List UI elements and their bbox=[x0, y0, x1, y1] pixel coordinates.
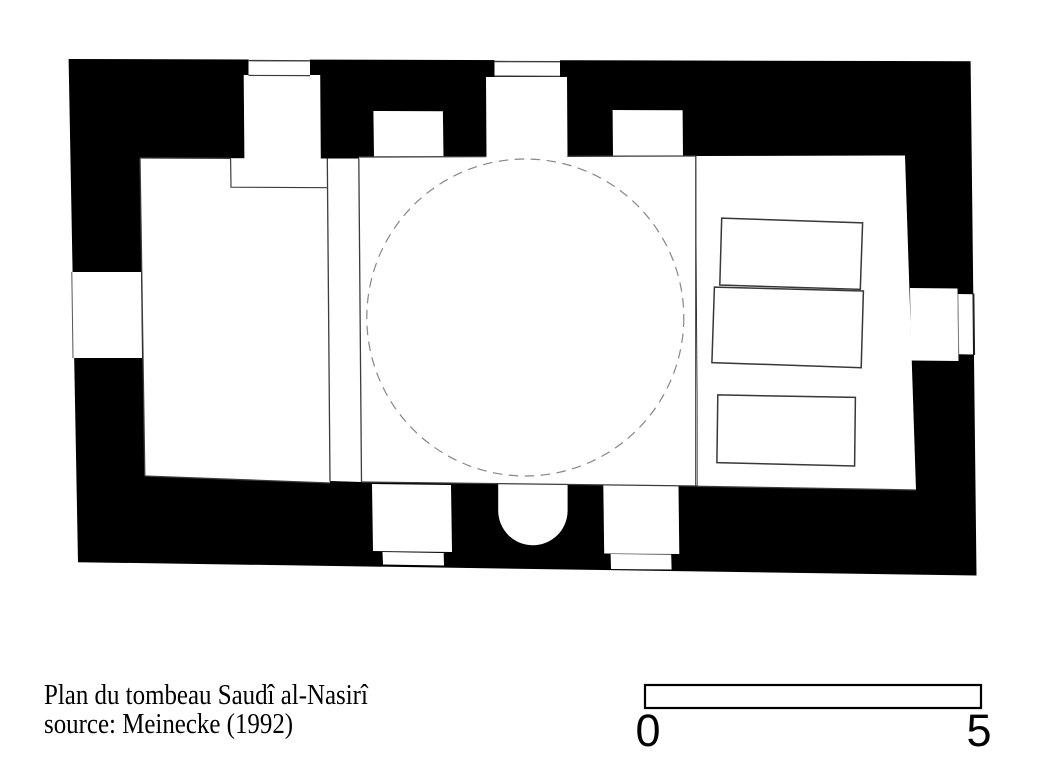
svg-text:5: 5 bbox=[966, 705, 991, 756]
svg-text:0: 0 bbox=[635, 705, 660, 756]
